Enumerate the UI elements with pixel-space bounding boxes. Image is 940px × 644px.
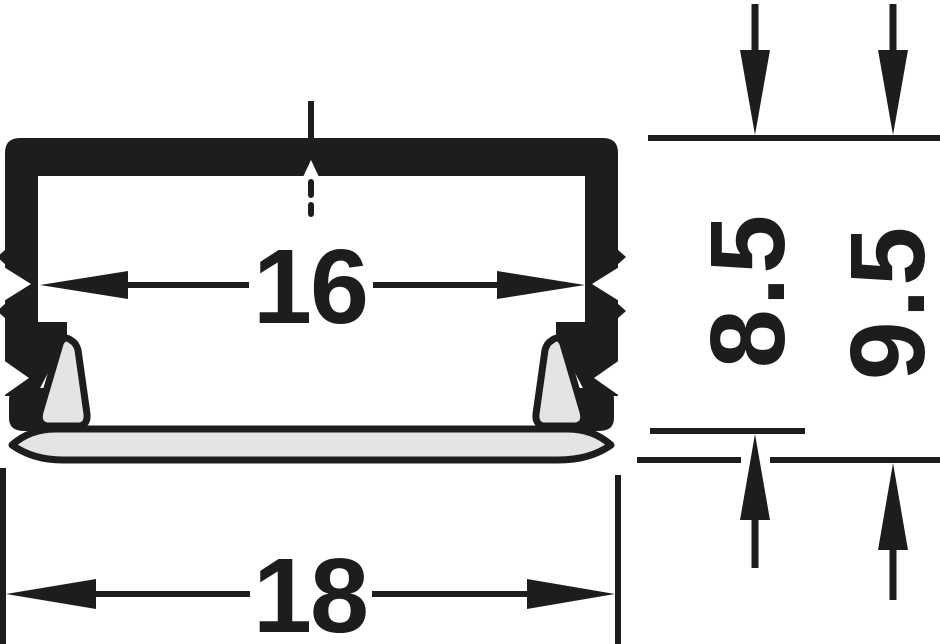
arrowhead-down-inner-icon	[740, 50, 770, 135]
dimension-outer-width: 18	[3, 468, 618, 644]
profile-side-wall	[536, 170, 626, 431]
profile-side-wall-mirrored	[0, 170, 87, 431]
arrowhead-right-icon	[497, 271, 585, 299]
profile-top-plate	[5, 138, 618, 177]
arrowhead-up-outer-icon	[878, 463, 908, 550]
profile-cross-section-drawing: 16 18	[0, 0, 940, 644]
diffuser-band	[12, 429, 611, 460]
dimension-heights: 8.5 9.5	[637, 4, 940, 600]
arrowhead-left-icon	[40, 271, 128, 299]
arrowhead-left-icon	[6, 579, 96, 609]
retaining-barb-lower	[617, 303, 626, 319]
arrowhead-down-outer-icon	[878, 50, 908, 135]
dimension-label-inner-height: 8.5	[689, 212, 807, 368]
dimension-label-inner-width: 16	[253, 228, 367, 346]
diffuser-lens	[12, 429, 611, 460]
arrowhead-up-inner-icon	[740, 434, 770, 520]
arrowhead-right-icon	[527, 579, 615, 609]
dimension-inner-width: 16	[40, 228, 585, 346]
technical-drawing-canvas: 16 18	[0, 0, 940, 644]
dimension-label-outer-width: 18	[253, 537, 367, 644]
dimension-label-outer-height: 9.5	[829, 224, 940, 380]
retaining-barb-upper	[617, 249, 626, 265]
